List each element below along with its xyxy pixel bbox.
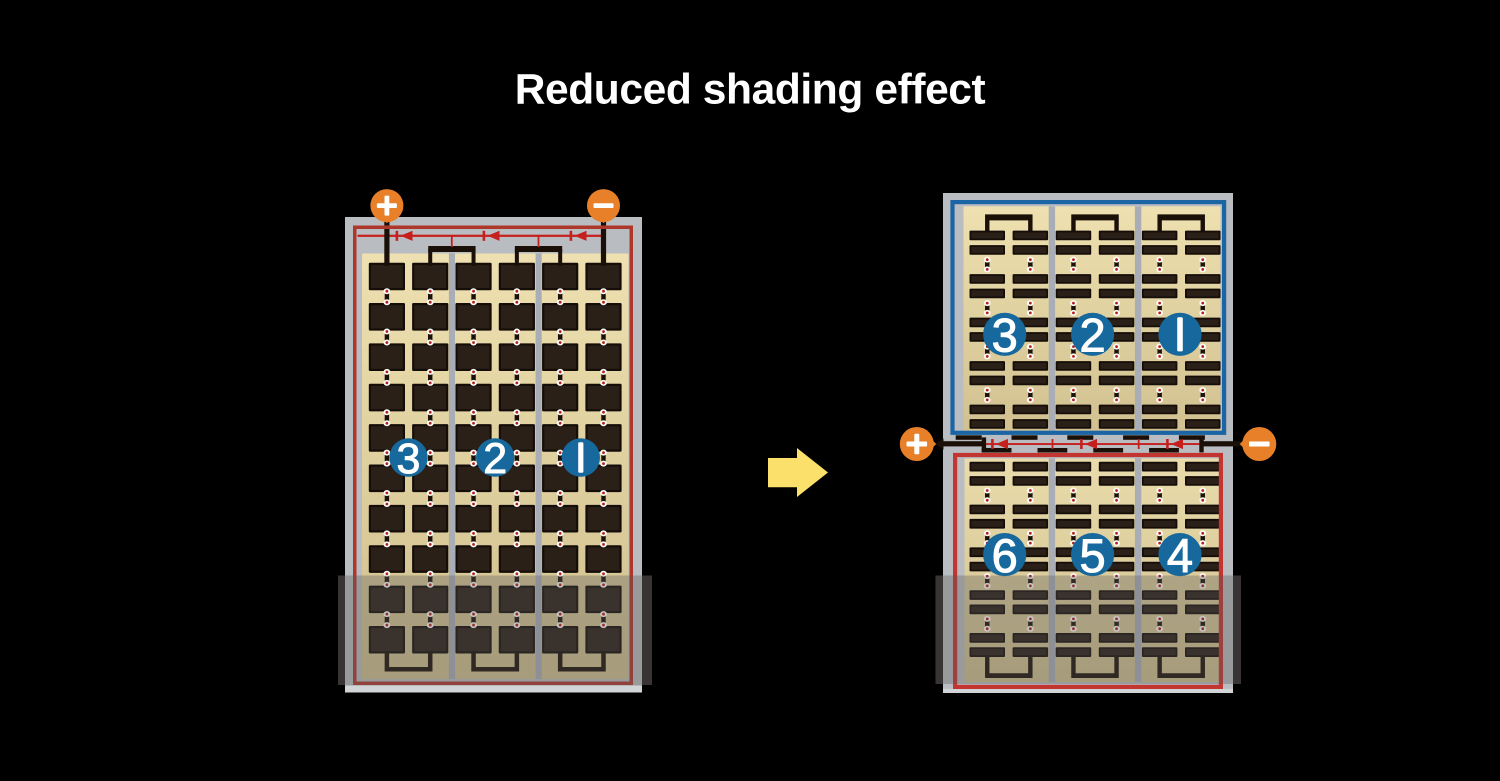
svg-text:4: 4 — [1167, 529, 1193, 582]
svg-text:5: 5 — [1080, 529, 1106, 582]
svg-text:2: 2 — [483, 435, 507, 483]
svg-text:2: 2 — [1080, 309, 1106, 362]
svg-text:3: 3 — [397, 435, 421, 483]
svg-text:6: 6 — [992, 529, 1018, 582]
svg-text:3: 3 — [992, 309, 1018, 362]
svg-text:Reduced shading effect: Reduced shading effect — [515, 67, 986, 114]
